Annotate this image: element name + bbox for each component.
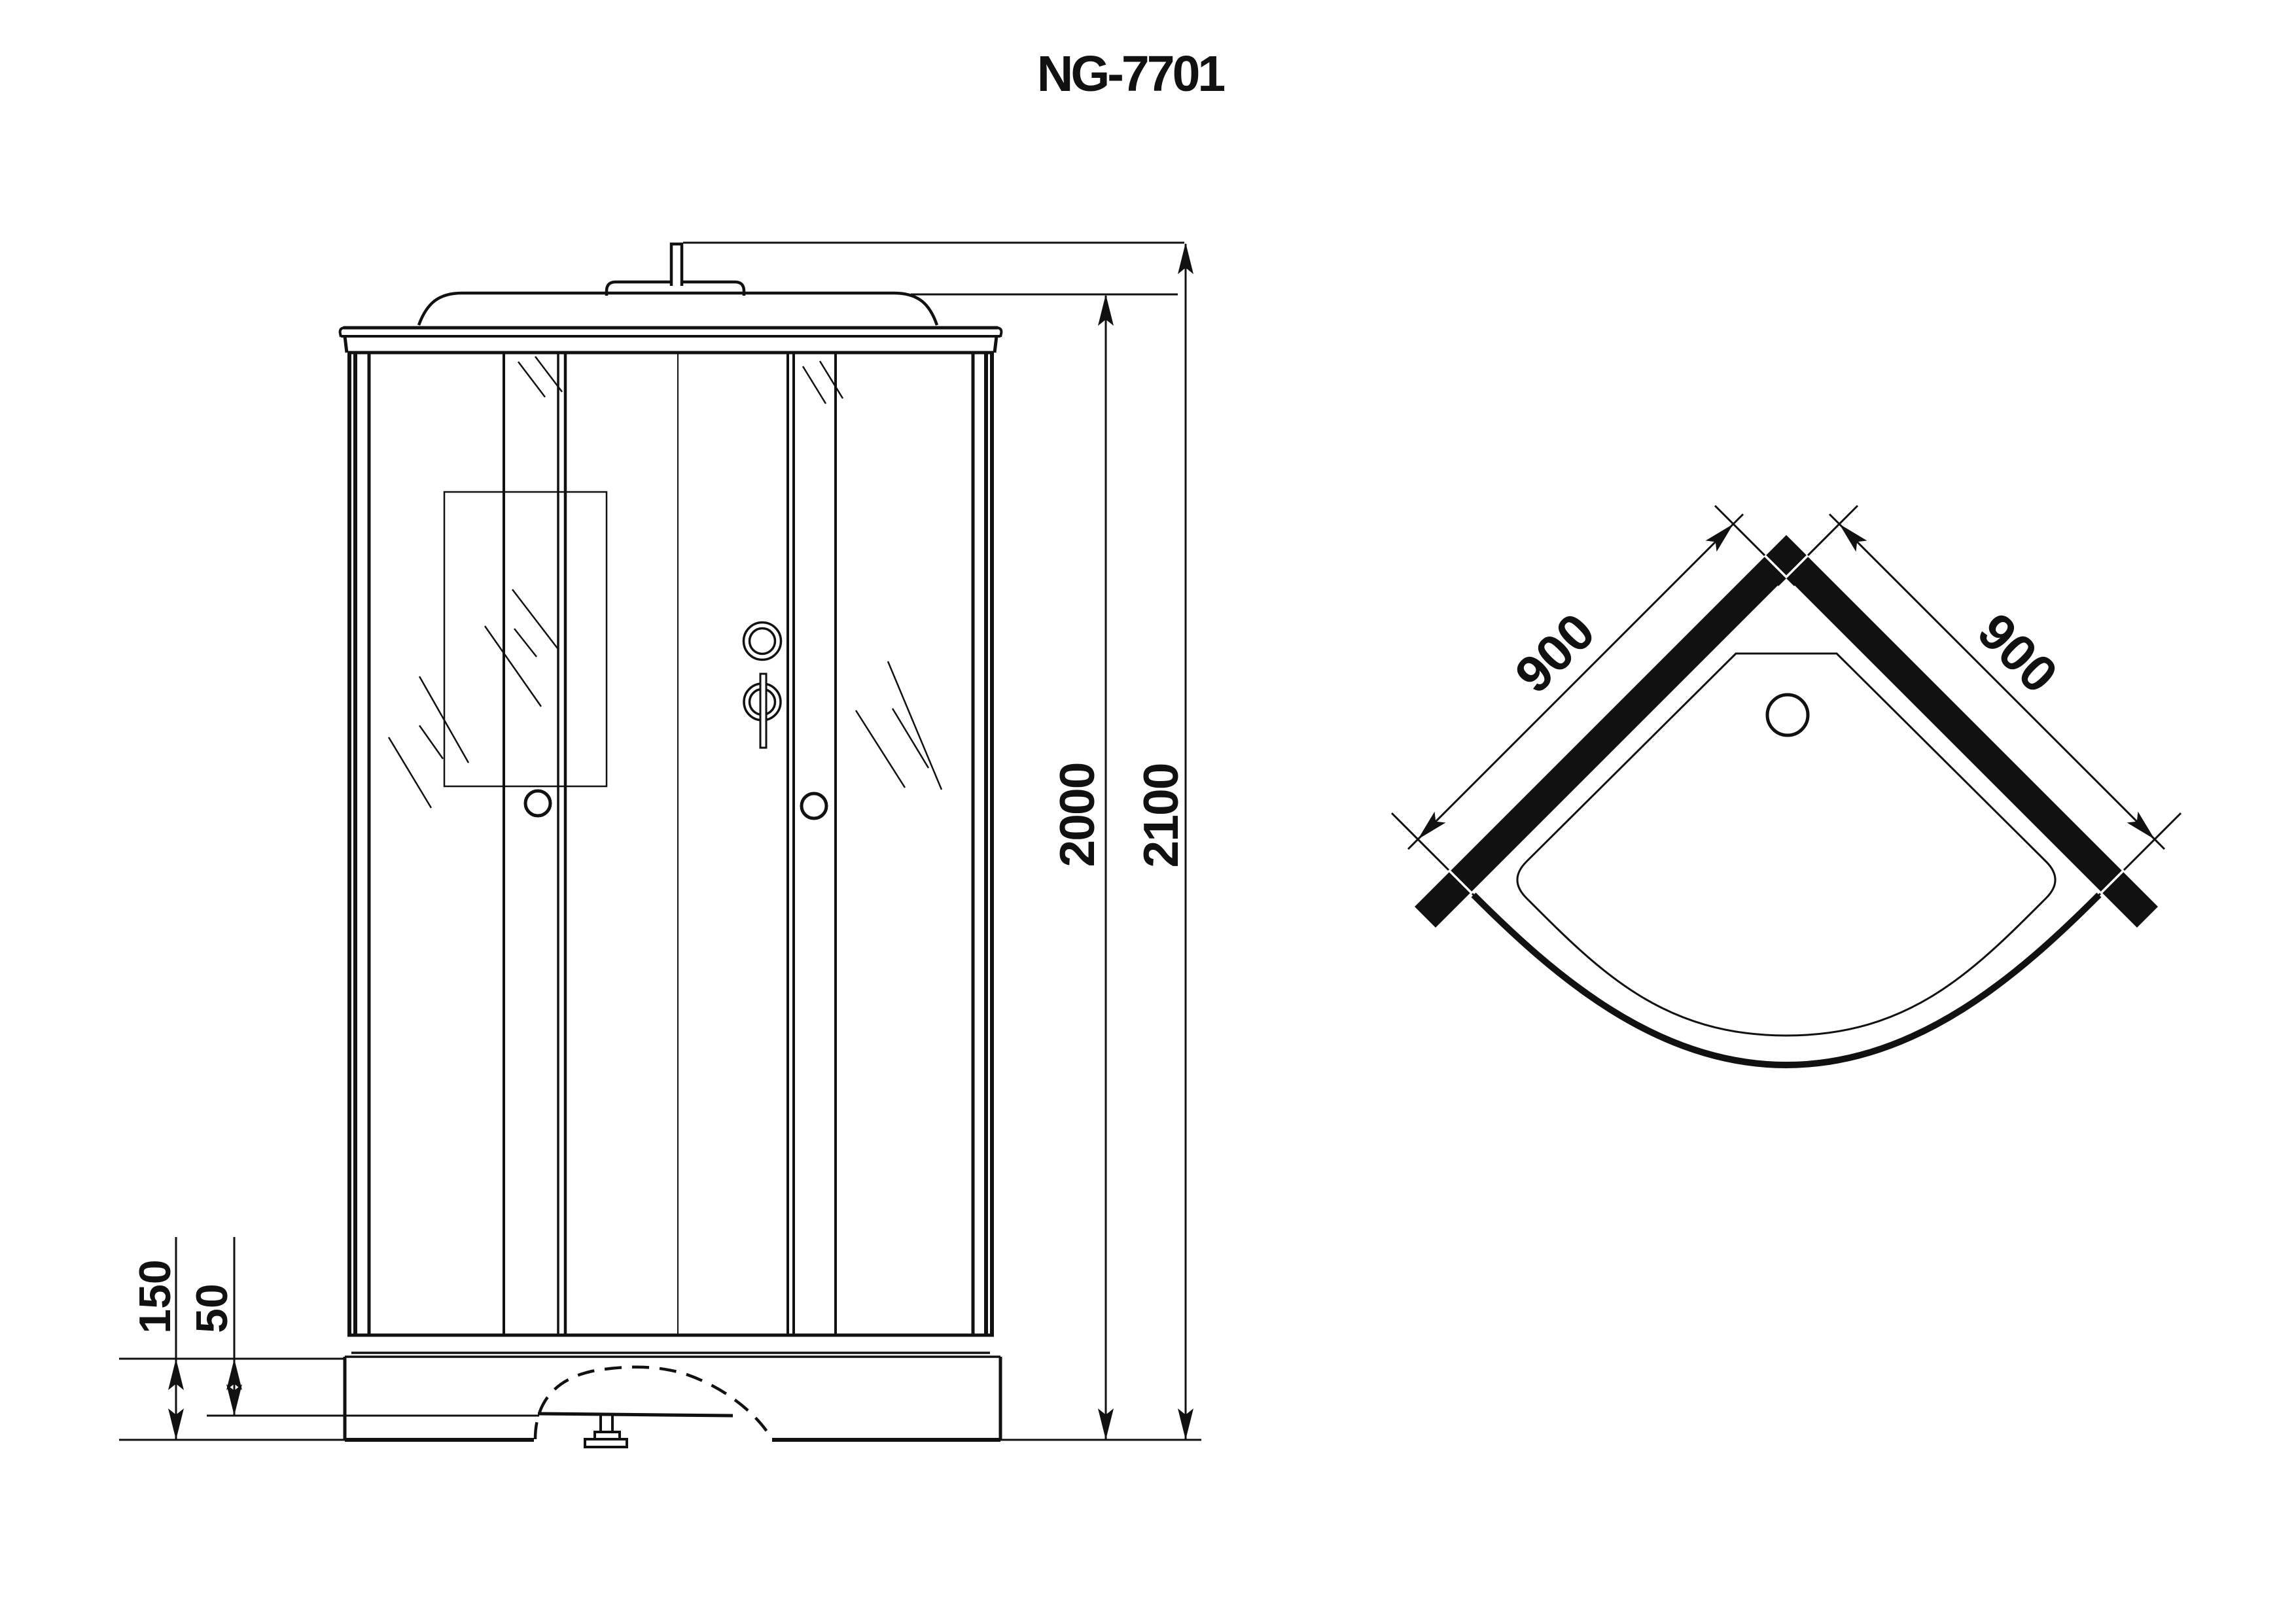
svg-text:2000: 2000	[1050, 763, 1104, 867]
svg-text:2100: 2100	[1133, 764, 1188, 868]
svg-text:150: 150	[130, 1259, 180, 1333]
svg-text:50: 50	[187, 1283, 237, 1333]
svg-text:NG-7701: NG-7701	[1037, 46, 1225, 102]
